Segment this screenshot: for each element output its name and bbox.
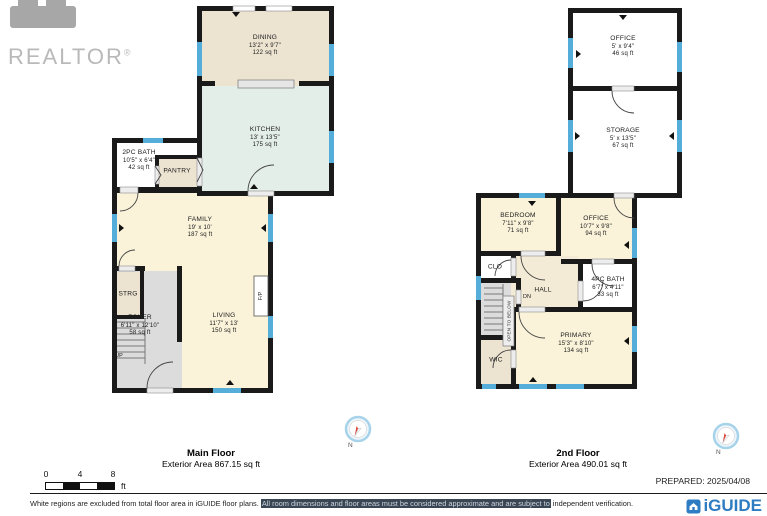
room-dims: 13' x 13'5" [250, 134, 280, 142]
kitchen-counter [238, 80, 294, 88]
room-area: 175 sq ft [250, 142, 280, 150]
room-area: 94 sq ft [580, 231, 612, 239]
room-area: 58 sq ft [121, 330, 160, 338]
room-area: 33 sq ft [591, 292, 624, 300]
room-label-foyer: FOYER 6'11" x 12'10" 58 sq ft [121, 314, 160, 338]
room-label-clo: CLO [488, 264, 502, 273]
room-name: STRG [118, 291, 137, 300]
room-area: 67 sq ft [606, 143, 640, 151]
compass-second-icon: N [714, 424, 738, 456]
scale-tick-0: 0 [44, 469, 49, 479]
room-label-office: OFFICE 10'7" x 9'8" 94 sq ft [580, 215, 612, 239]
room-label-pantry: PANTRY [163, 168, 190, 177]
disclaimer-text: White regions are excluded from total fl… [30, 499, 633, 508]
stairs-dn-label: DN [523, 294, 531, 300]
room-name: CLO [488, 264, 502, 273]
compass-main-icon: N [346, 417, 370, 449]
main-floor-title: Main Floor [187, 448, 235, 459]
compass-n-label: N [348, 442, 353, 449]
disclaimer-pre: White regions are excluded from total fl… [30, 499, 261, 508]
room-name: OFFICE [580, 215, 612, 224]
room-label-kitchen: KITCHEN 13' x 13'5" 175 sq ft [250, 126, 280, 150]
iguide-wordmark: iGUIDE [703, 496, 762, 516]
main-floor-subtitle: Exterior Area 867.15 sq ft [162, 459, 260, 469]
disclaimer-highlighted: All room dimensions and floor areas must… [261, 499, 551, 508]
room-name: KITCHEN [250, 126, 280, 135]
second-floor-title: 2nd Floor [556, 448, 599, 459]
floor-plan-page: { "branding": { "realtor_label": "REALTO… [0, 0, 767, 511]
room-name: PRIMARY [558, 332, 594, 341]
room-name: 2PC BATH [122, 149, 155, 158]
room-dims: 11'7" x 13' [209, 320, 238, 328]
room-area: 187 sq ft [188, 232, 213, 240]
room-label-4pc-bath: 4PC BATH 6'7" x 4'11" 33 sq ft [591, 276, 624, 300]
room-dims: 10'5" x 6'4" [122, 157, 155, 165]
scale-tick-8: 8 [111, 469, 116, 479]
footer-divider [30, 493, 767, 494]
room-label-dining: DINING 13'2" x 9'7" 122 sq ft [249, 34, 281, 58]
scale-tick-4: 4 [78, 469, 83, 479]
room-area: 134 sq ft [558, 348, 594, 356]
room-label-living: LIVING 11'7" x 13' 150 sq ft [209, 312, 238, 336]
room-dims: 7'11" x 9'8" [500, 220, 535, 228]
room-name: FAMILY [188, 216, 213, 225]
second-floor-subtitle: Exterior Area 490.01 sq ft [529, 459, 627, 469]
scale-unit-label: ft [121, 481, 126, 491]
scale-segment [97, 483, 114, 489]
iguide-logo: iGUIDE [683, 496, 762, 516]
disclaimer-post: independent verification. [551, 499, 633, 508]
iguide-house-icon [686, 499, 701, 514]
scale-segment [80, 483, 97, 489]
compass-n-label: N [716, 449, 721, 456]
room-label-wic: WIC [489, 357, 502, 366]
room-dims: 19' x 10' [188, 224, 213, 232]
room-dims: 6'7" x 4'11" [591, 284, 624, 292]
room-label-hall: HALL [534, 287, 551, 296]
room-name: BEDROOM [500, 212, 535, 221]
floorplan-drawing: N N [0, 0, 767, 511]
fireplace-label: F/P [258, 292, 264, 301]
room-dims: 6'11" x 12'10" [121, 322, 160, 330]
room-name: WIC [489, 357, 502, 366]
room-area: 42 sq ft [122, 165, 155, 173]
scale-segment [46, 483, 63, 489]
room-label-office-upper: OFFICE 5' x 9'4" 46 sq ft [610, 35, 635, 59]
prepared-date: PREPARED: 2025/04/08 [656, 476, 750, 486]
room-dims: 13'2" x 9'7" [249, 42, 281, 50]
room-dims: 10'7" x 9'8" [580, 223, 612, 231]
room-name: OFFICE [610, 35, 635, 44]
room-area: 71 sq ft [500, 228, 535, 236]
room-dims: 5' x 13'5" [606, 135, 640, 143]
room-name: FOYER [121, 314, 160, 323]
room-name: DINING [249, 34, 281, 43]
room-label-2pc-bath: 2PC BATH 10'5" x 6'4" 42 sq ft [122, 149, 155, 173]
scale-segment [63, 483, 80, 489]
room-area: 122 sq ft [249, 50, 281, 58]
room-label-strg: STRG [118, 291, 137, 300]
room-label-bedroom: BEDROOM 7'11" x 9'8" 71 sq ft [500, 212, 535, 236]
room-name: STORAGE [606, 127, 640, 136]
room-name: 4PC BATH [591, 276, 624, 285]
room-label-primary: PRIMARY 15'3" x 8'10" 134 sq ft [558, 332, 594, 356]
scale-bar [45, 482, 115, 490]
room-dims: 5' x 9'4" [610, 43, 635, 51]
room-name: HALL [534, 287, 551, 296]
room-label-storage: STORAGE 5' x 13'5" 67 sq ft [606, 127, 640, 151]
room-area: 150 sq ft [209, 328, 238, 336]
room-area: 46 sq ft [610, 51, 635, 59]
room-name: PANTRY [163, 168, 190, 177]
room-dims: 15'3" x 8'10" [558, 340, 594, 348]
room-name: LIVING [209, 312, 238, 321]
open-to-below-label: OPEN TO BELOW [507, 301, 512, 342]
room-label-family: FAMILY 19' x 10' 187 sq ft [188, 216, 213, 240]
stairs-up-label: UP [115, 353, 123, 359]
